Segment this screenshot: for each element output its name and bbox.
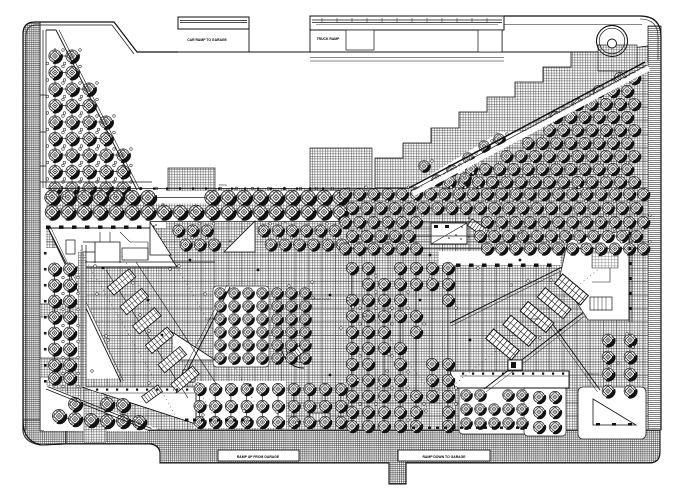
svg-text:PLAZA: PLAZA (385, 237, 395, 241)
svg-text:TRUCK RAMP: TRUCK RAMP (317, 37, 341, 41)
svg-text:LOWER PLAZA: LOWER PLAZA (310, 297, 331, 301)
svg-text:LOBBY: LOBBY (530, 317, 540, 321)
svg-text:RAMP DOWN TO GARAGE: RAMP DOWN TO GARAGE (422, 455, 466, 459)
svg-text:TERRACE: TERRACE (585, 372, 599, 376)
svg-text:LOBBY: LOBBY (205, 317, 215, 321)
svg-text:POOL: POOL (219, 183, 228, 187)
svg-text:CAR RAMP TO GARAGE: CAR RAMP TO GARAGE (187, 38, 227, 42)
svg-text:RAMP UP FROM GARAGE: RAMP UP FROM GARAGE (237, 455, 280, 459)
